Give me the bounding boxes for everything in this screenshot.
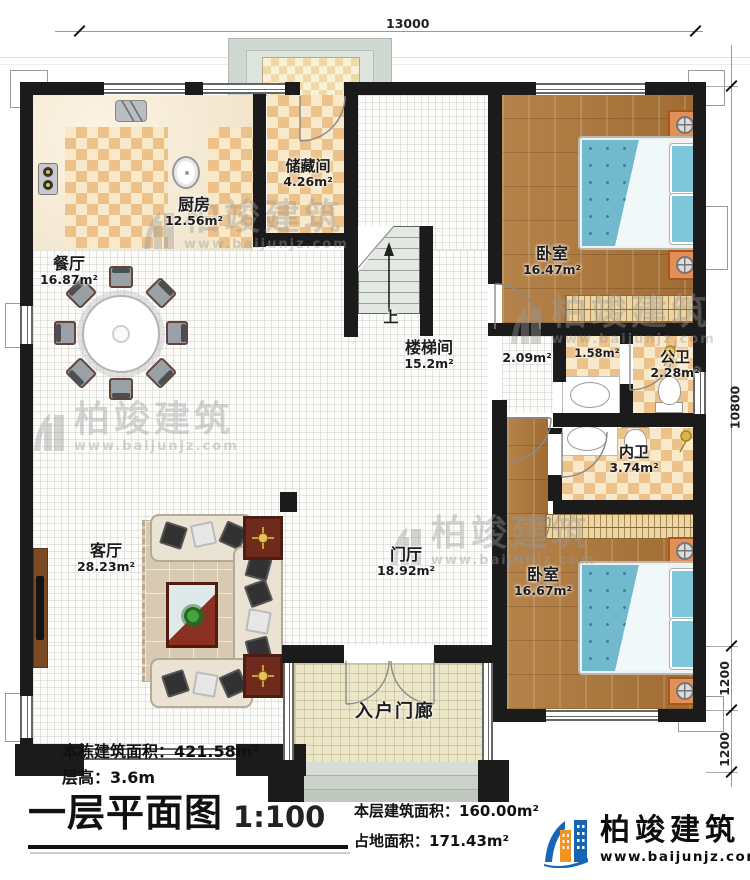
brand-logo-icon [538, 812, 592, 868]
sofa-cushion [244, 579, 273, 608]
wall [285, 82, 300, 95]
table-lamp [252, 665, 274, 687]
room-area: 16.47m² [523, 263, 581, 277]
floor-area: 本层建筑面积：160.00m² [354, 800, 539, 821]
room-area: 1.58m² [574, 347, 619, 360]
room-name: 卧室 [514, 566, 572, 584]
burner [43, 180, 53, 190]
floor-plan-canvas: 柏竣建筑 www.baijunjz.com 柏竣建筑 www.baijunjz.… [0, 0, 750, 880]
washbasin [570, 382, 610, 408]
sofa-right [233, 546, 283, 666]
window [546, 710, 658, 721]
wall [282, 645, 344, 663]
room-area: 12.56m² [165, 214, 223, 228]
wall [548, 475, 562, 501]
cooktop-stove [38, 163, 58, 195]
porch-railing [283, 663, 294, 760]
floor-height: 层高：3.6m [62, 764, 155, 788]
dimension-right-height: 10800 [727, 386, 742, 430]
room-label-kitchen: 厨房 12.56m² [165, 196, 223, 227]
room-label-entry-porch: 入户门廊 [355, 702, 435, 722]
window [104, 83, 185, 94]
sofa-cushion [245, 608, 272, 635]
floor-height-value: 3.6m [110, 768, 155, 787]
kitchen-tile-a [65, 127, 168, 248]
footprint-value: 171.43m² [429, 832, 509, 850]
room-name: 入户门廊 [355, 702, 435, 722]
brand-website: www.baijunjz.com [600, 849, 750, 865]
room-name: 储藏间 [283, 158, 332, 175]
nightstand-knob [676, 116, 694, 134]
brand-name: 柏竣建筑 [600, 816, 750, 846]
wall [658, 709, 706, 722]
floor-area-label: 本层建筑面积： [354, 802, 459, 820]
floor-area-value: 160.00m² [459, 802, 539, 820]
room-area: 15.2m² [404, 357, 453, 371]
extension-line [706, 772, 738, 773]
stairs-up-label: 上 [383, 309, 398, 326]
side-table-bottom [243, 654, 283, 698]
room-name: 楼梯间 [404, 339, 453, 357]
extension-line [706, 646, 738, 647]
wall [20, 344, 33, 696]
room-area: 2.09m² [502, 351, 551, 365]
bedroom2-wardrobe [545, 514, 695, 539]
plan-title-row: 一层平面图 1:100 [28, 794, 325, 832]
wall [693, 414, 706, 722]
wall [253, 92, 266, 247]
room-label-storage: 储藏间 4.26m² [283, 158, 332, 188]
dimension-right-seg-b: 1200 [717, 732, 732, 767]
room-area: 16.67m² [514, 584, 572, 598]
side-table-top [243, 516, 283, 560]
dining-chair [109, 378, 133, 400]
dimension-line-top [55, 31, 703, 32]
title-underline [28, 845, 348, 849]
wall [553, 413, 706, 427]
porch-pillar [478, 760, 509, 802]
hall209-floor [502, 336, 553, 413]
nightstand-knob [676, 256, 694, 274]
room-area: 2.28m² [650, 366, 699, 380]
dining-chair [54, 321, 76, 345]
room-name: 内卫 [609, 444, 658, 461]
room-label-foyer: 门厅 18.92m² [377, 546, 435, 577]
room-area: 28.23m² [77, 560, 135, 574]
room-label-dining: 餐厅 16.87m² [40, 255, 98, 286]
room-label-bedroom2: 卧室 16.67m² [514, 566, 572, 597]
room-name: 餐厅 [40, 255, 98, 273]
bedroom1-wardrobe [565, 295, 695, 322]
dining-chair [109, 266, 133, 288]
room-label-bedroom1: 卧室 16.47m² [523, 245, 581, 276]
plan-title: 一层平面图 [28, 794, 223, 832]
room-name: 客厅 [77, 542, 135, 560]
wall [20, 82, 33, 306]
room-name: 公卫 [650, 349, 699, 366]
nightstand-knob [676, 682, 694, 700]
table-lamp [252, 527, 274, 549]
dining-chair [166, 321, 188, 345]
wall [620, 384, 633, 414]
room-name: 卧室 [523, 245, 581, 263]
window [20, 306, 33, 344]
wall [553, 330, 566, 382]
washbasin [567, 426, 607, 451]
sofa-bottom [150, 658, 253, 708]
wall [548, 428, 562, 434]
wall [253, 233, 358, 246]
room-label-public-bath: 公卫 2.28m² [650, 349, 699, 379]
dimension-top-width: 13000 [386, 16, 430, 31]
wall [420, 226, 433, 336]
room-area: 18.92m² [377, 564, 435, 578]
wall [344, 82, 536, 95]
room-area: 3.74m² [609, 461, 658, 475]
bay-window-right [704, 206, 728, 270]
nightstand-knob [676, 542, 694, 560]
floor-height-label: 层高： [62, 768, 110, 787]
extension-line [706, 710, 738, 711]
plan-scale: 1:100 [233, 803, 325, 832]
room-area: 16.87m² [40, 273, 98, 287]
window [536, 83, 645, 94]
wall [490, 709, 546, 722]
kitchen-sink [172, 156, 200, 189]
column [280, 492, 297, 512]
extension-line [706, 86, 738, 87]
dining-table-center [112, 325, 130, 343]
wall [620, 330, 633, 344]
room-label-ensuite: 内卫 3.74m² [609, 444, 658, 474]
sink-drain [185, 171, 189, 175]
room-name: 厨房 [165, 196, 223, 214]
building-total-area: 本栋建筑面积：421.58m² [62, 738, 259, 762]
wall [488, 92, 502, 284]
tv [36, 576, 44, 640]
coffee-table [166, 582, 218, 648]
wall [185, 82, 203, 95]
wall [553, 500, 706, 514]
toilet-bowl [658, 376, 681, 405]
building-total-label: 本栋建筑面积： [62, 742, 174, 761]
plant [181, 604, 205, 628]
porch-railing [482, 663, 493, 760]
wall [434, 645, 494, 663]
wall [492, 417, 507, 709]
window [20, 696, 33, 738]
sofa-cushion [159, 521, 188, 550]
brand-logo: 柏竣建筑 www.baijunjz.com [538, 812, 750, 868]
area-label-closet: 1.58m² [574, 347, 619, 360]
footprint-label: 占地面积： [354, 832, 429, 850]
footprint-area: 占地面积：171.43m² [354, 830, 509, 851]
building-total-value: 421.58m² [174, 742, 259, 761]
entry-steps [304, 762, 478, 802]
sofa-cushion [161, 669, 190, 698]
room-name: 门厅 [377, 546, 435, 564]
sofa-cushion [192, 671, 219, 698]
title-underline-shadow [30, 852, 350, 854]
dimension-right-seg-a: 1200 [717, 661, 732, 696]
wall [492, 400, 507, 417]
bedroom2-corridor-floor [507, 417, 548, 514]
room-label-stairwell: 楼梯间 15.2m² [404, 339, 453, 370]
up-text: 上 [383, 309, 398, 326]
window [203, 83, 285, 94]
sofa-cushion [190, 521, 217, 548]
wall [344, 95, 358, 337]
burner [43, 167, 53, 177]
wall [488, 323, 706, 336]
range-hood [115, 100, 147, 122]
area-label-stair-hall: 2.09m² [502, 351, 551, 365]
room-area: 4.26m² [283, 175, 332, 189]
room-label-living: 客厅 28.23m² [77, 542, 135, 573]
